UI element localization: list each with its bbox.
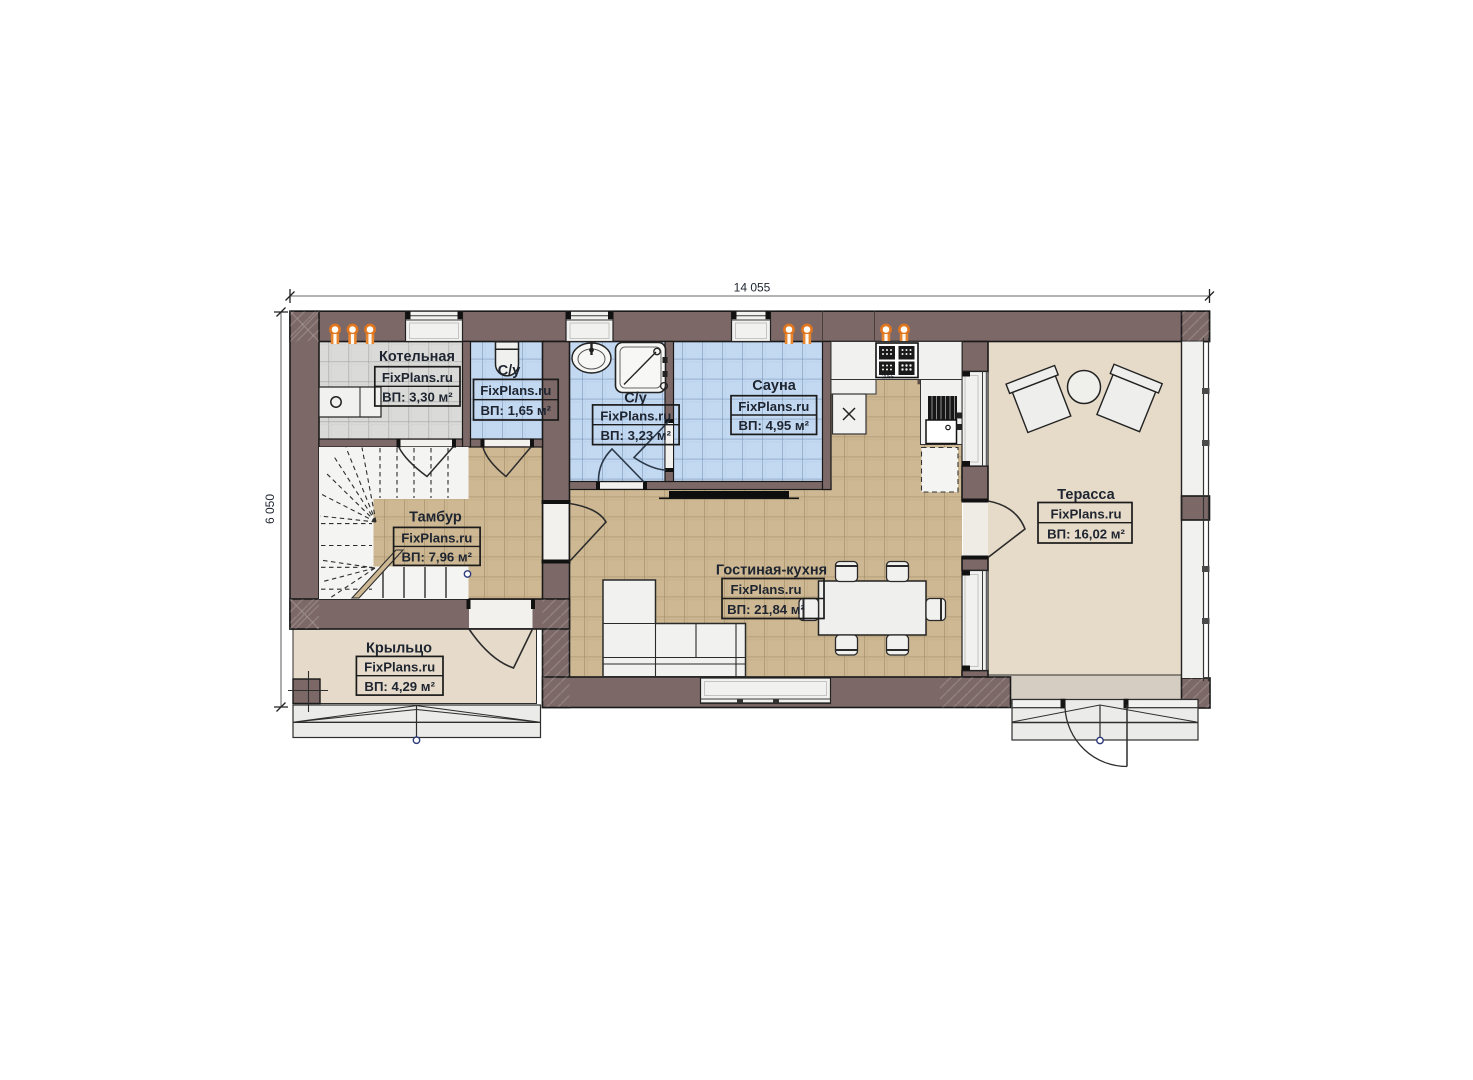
svg-text:ВП: 3,30 м²: ВП: 3,30 м² [382,390,453,405]
svg-text:FixPlans.ru: FixPlans.ru [1050,506,1121,521]
svg-text:FixPlans.ru: FixPlans.ru [382,370,453,385]
svg-text:6 050: 6 050 [263,494,277,524]
svg-text:FixPlans.ru: FixPlans.ru [480,383,551,398]
svg-text:14 055: 14 055 [734,281,771,295]
svg-text:Котельная: Котельная [379,349,455,365]
svg-text:Сауна: Сауна [752,378,797,394]
svg-text:ВП: 1,65 м²: ВП: 1,65 м² [481,403,552,418]
svg-text:Крыльцо: Крыльцо [366,641,432,657]
svg-text:ВП: 4,29 м²: ВП: 4,29 м² [364,679,435,694]
svg-text:FixPlans.ru: FixPlans.ru [600,408,671,423]
svg-text:ВП: 4,95 м²: ВП: 4,95 м² [739,418,810,433]
svg-text:2055: 2055 [882,375,894,381]
svg-text:FixPlans.ru: FixPlans.ru [730,582,801,597]
svg-text:FixPlans.ru: FixPlans.ru [738,399,809,414]
svg-text:Терасса: Терасса [1057,487,1115,503]
svg-text:FixPlans.ru: FixPlans.ru [364,660,435,675]
svg-text:С/у: С/у [498,363,521,379]
svg-text:Гостиная-кухня: Гостиная-кухня [716,563,827,579]
svg-text:ВП: 7,96 м²: ВП: 7,96 м² [402,549,473,564]
svg-text:ВП: 16,02 м²: ВП: 16,02 м² [1047,526,1125,541]
svg-text:FixPlans.ru: FixPlans.ru [401,530,472,545]
svg-text:ВП: 21,84 м²: ВП: 21,84 м² [727,602,805,617]
svg-text:Тамбур: Тамбур [409,510,462,526]
svg-text:ВП: 3,23 м²: ВП: 3,23 м² [601,428,672,443]
